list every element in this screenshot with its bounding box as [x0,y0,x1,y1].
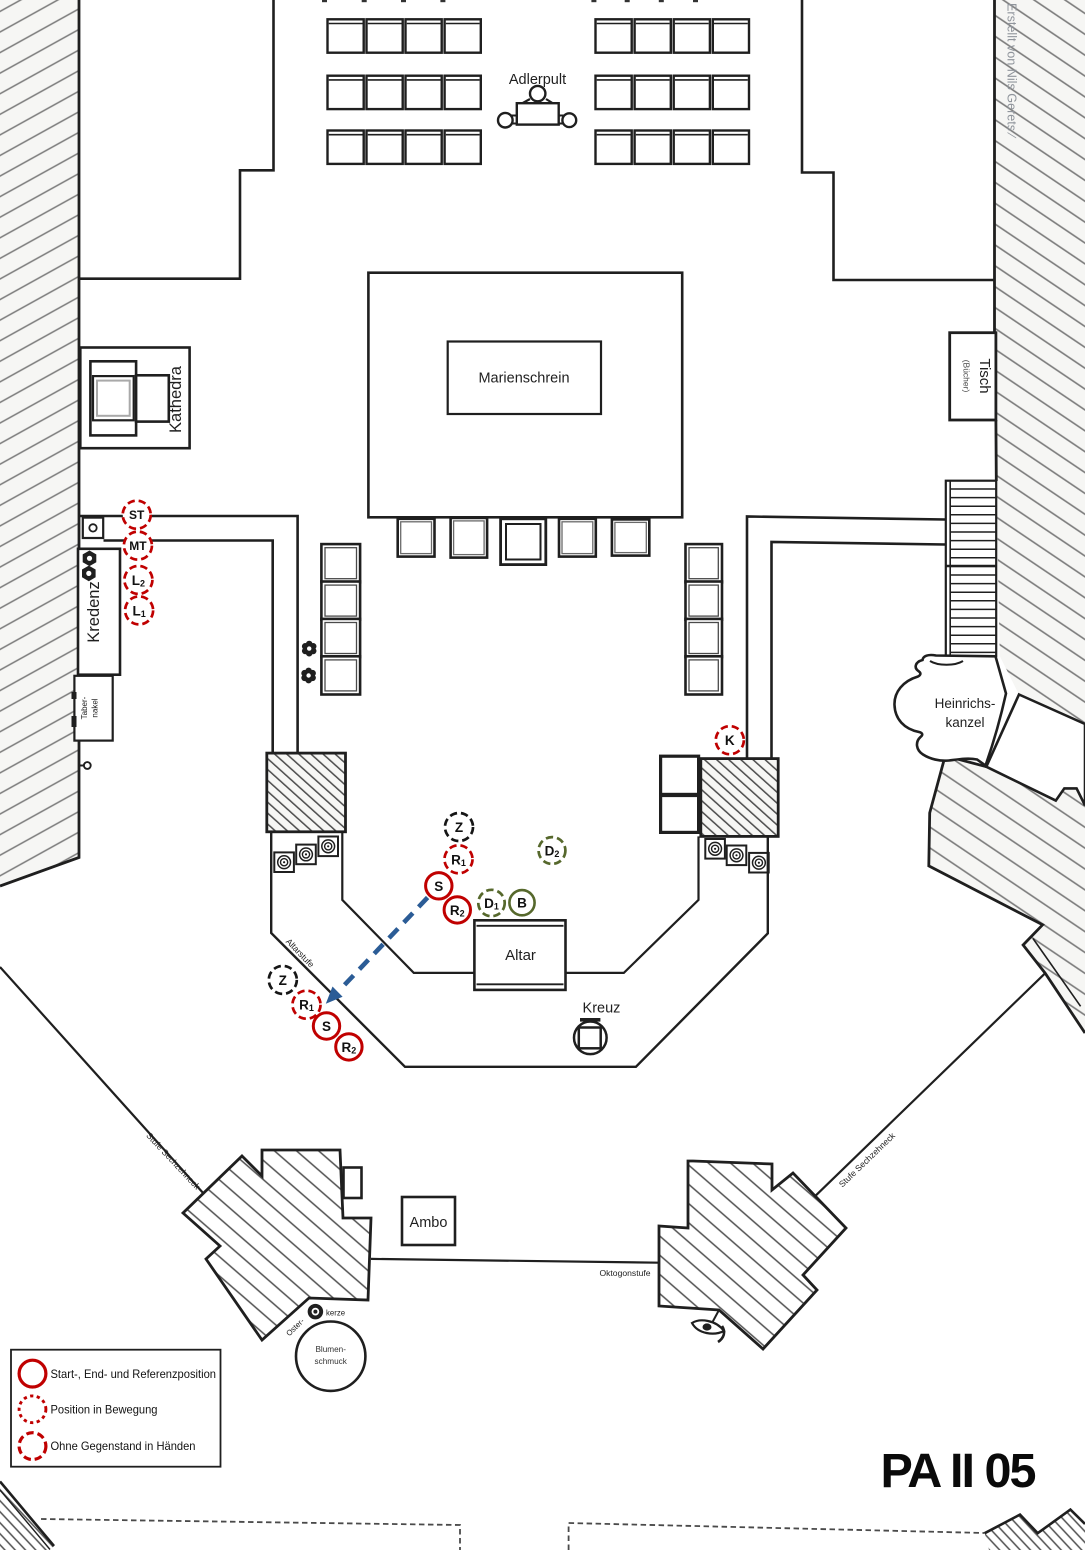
svg-text:Z: Z [455,820,463,835]
svg-text:(Bücher): (Bücher) [962,360,972,393]
svg-text:Kredenz: Kredenz [85,581,103,642]
svg-text:Position in Bewegung: Position in Bewegung [51,1403,158,1417]
svg-text:kanzel: kanzel [945,715,984,730]
svg-text:Marienschrein: Marienschrein [478,371,569,387]
svg-text:Taber-: Taber- [80,696,89,719]
svg-text:MT: MT [129,539,147,553]
svg-text:Kreuz: Kreuz [583,1001,621,1017]
svg-text:ST: ST [129,508,145,522]
svg-text:schmuck: schmuck [315,1357,348,1366]
svg-text:Kathedra: Kathedra [167,365,185,433]
svg-text:Tisch: Tisch [976,358,993,393]
svg-text:Erstellt von Nils Gerets ∕: Erstellt von Nils Gerets ∕ [1005,3,1019,139]
svg-text:Z: Z [279,973,287,988]
svg-text:Blumen-: Blumen- [315,1345,346,1354]
svg-text:K: K [725,733,735,748]
svg-text:Ambo: Ambo [410,1215,448,1231]
svg-text:kerze: kerze [326,1309,345,1318]
svg-text:B: B [517,896,527,911]
svg-text:Heinrichs-: Heinrichs- [935,696,996,711]
svg-text:Start-, End- und Referenzposit: Start-, End- und Referenzposition [51,1367,217,1381]
svg-text:Ohne Gegenstand in Händen: Ohne Gegenstand in Händen [51,1439,196,1453]
svg-text:PA II 05: PA II 05 [881,1444,1037,1498]
svg-text:S: S [322,1019,331,1034]
svg-text:Altar: Altar [505,947,536,964]
svg-text:nakel: nakel [91,698,100,717]
svg-text:S: S [434,879,443,894]
svg-text:Oktogonstufe: Oktogonstufe [599,1268,650,1278]
